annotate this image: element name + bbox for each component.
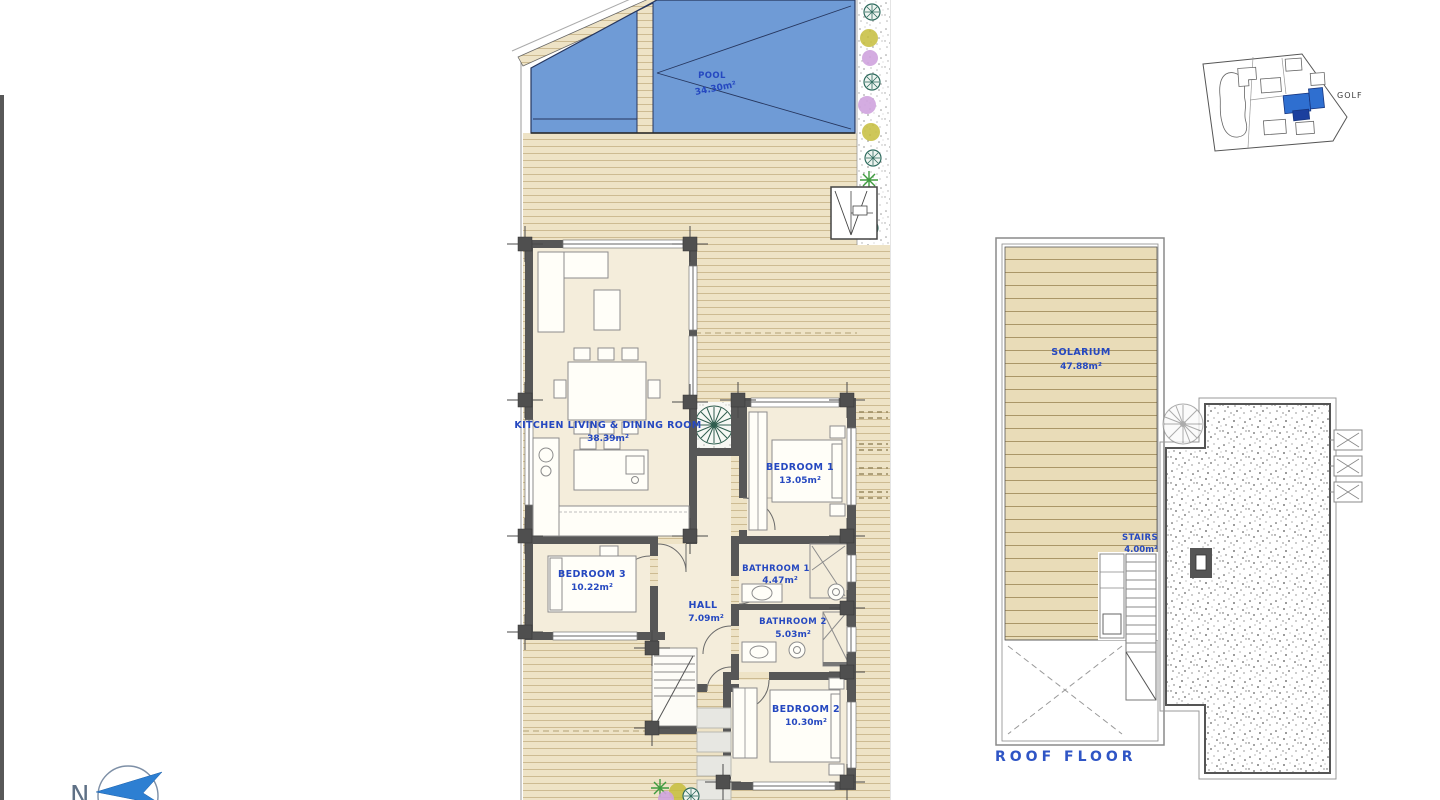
roof-floor-title: ROOF FLOOR bbox=[995, 749, 1137, 765]
roof-stairs bbox=[1126, 554, 1156, 700]
solarium-area: 47.88m² bbox=[1060, 362, 1102, 372]
living-label: KITCHEN LIVING & DINING ROOM bbox=[514, 420, 701, 431]
kitchen-counter bbox=[533, 438, 559, 536]
pillow bbox=[550, 558, 562, 610]
bedroom3-area: 10.22m² bbox=[571, 583, 613, 593]
hall-label: HALL bbox=[688, 600, 717, 611]
site-locator-map: GOLF bbox=[1203, 54, 1363, 151]
bush-icon bbox=[862, 123, 880, 141]
north-compass: N bbox=[70, 766, 162, 800]
window bbox=[563, 240, 683, 248]
roof-counter bbox=[1100, 554, 1124, 638]
roof-floor-plan: SOLARIUM 47.88m² STAIRS 4.00m² ROOF FLOO… bbox=[995, 238, 1362, 779]
pool: POOL 34.30m² bbox=[531, 0, 855, 133]
flower-icon bbox=[858, 96, 876, 114]
nightstand bbox=[830, 426, 845, 438]
ground-floor-plan: POOL 34.30m² bbox=[507, 0, 890, 800]
chair bbox=[554, 380, 566, 398]
sofa bbox=[564, 252, 608, 278]
louver-unit bbox=[1334, 430, 1362, 450]
page-edge-strip bbox=[0, 95, 4, 800]
golf-label: GOLF bbox=[1337, 91, 1363, 100]
shrub-icon bbox=[865, 150, 881, 166]
chair bbox=[598, 348, 614, 360]
window bbox=[751, 398, 839, 407]
nightstand bbox=[830, 504, 845, 516]
louver-unit bbox=[1334, 456, 1362, 476]
bathroom1-area: 4.47m² bbox=[762, 576, 798, 586]
louver-unit bbox=[1334, 482, 1362, 502]
bedroom2-area: 10.30m² bbox=[785, 718, 827, 728]
toilet bbox=[789, 642, 805, 658]
pool-label: POOL bbox=[698, 71, 726, 81]
entry-stairs bbox=[652, 648, 697, 726]
solarium-label: SOLARIUM bbox=[1051, 347, 1111, 358]
bush-icon bbox=[860, 29, 878, 47]
chair bbox=[574, 348, 590, 360]
shrub-icon bbox=[683, 788, 699, 800]
bedroom2-label: BEDROOM 2 bbox=[772, 704, 840, 715]
floorplan-canvas: POOL 34.30m² bbox=[0, 0, 1440, 800]
bathroom1-label: BATHROOM 1 bbox=[742, 564, 810, 574]
sofa bbox=[538, 252, 564, 332]
north-letter: N bbox=[70, 781, 89, 800]
bedroom3-label: BEDROOM 3 bbox=[558, 569, 626, 580]
chair bbox=[648, 380, 660, 398]
bathroom2-label: BATHROOM 2 bbox=[759, 617, 827, 627]
living-area: 38.39m² bbox=[587, 434, 629, 444]
wood-deck-east bbox=[857, 245, 890, 800]
window bbox=[847, 702, 856, 768]
armchair bbox=[594, 290, 620, 330]
pergola-louvers bbox=[1330, 430, 1362, 502]
stairs-label: STAIRS bbox=[1122, 533, 1158, 543]
shrub-icon bbox=[864, 74, 880, 90]
chair bbox=[622, 348, 638, 360]
bedroom1-label: BEDROOM 1 bbox=[766, 462, 834, 473]
toilet bbox=[828, 584, 844, 600]
shrub-icon bbox=[864, 4, 880, 20]
pool-deck-bridge bbox=[637, 3, 653, 133]
room-hall bbox=[658, 544, 731, 648]
nightstand bbox=[829, 764, 844, 775]
washbasin bbox=[742, 642, 776, 662]
window bbox=[553, 632, 637, 640]
roof-sink bbox=[1103, 614, 1121, 634]
window bbox=[525, 420, 533, 505]
kitchen-counter bbox=[559, 506, 689, 536]
window bbox=[847, 555, 856, 582]
window bbox=[753, 782, 835, 790]
dining-table bbox=[568, 362, 646, 420]
window bbox=[689, 266, 697, 330]
bathroom2-area: 5.03m² bbox=[775, 630, 811, 640]
window bbox=[847, 627, 856, 652]
washbasin bbox=[742, 584, 782, 602]
stairs-area: 4.00m² bbox=[1124, 545, 1158, 555]
gravel-roof bbox=[1166, 404, 1330, 773]
roof-tree-icon bbox=[1163, 404, 1203, 444]
outdoor-shower-structure bbox=[831, 187, 877, 239]
bedroom1-area: 13.05m² bbox=[779, 476, 821, 486]
hall-area: 7.09m² bbox=[688, 614, 724, 624]
flower-icon bbox=[862, 50, 878, 66]
nightstand bbox=[829, 678, 844, 689]
nightstand bbox=[600, 546, 618, 556]
window bbox=[847, 428, 856, 505]
chimney bbox=[1190, 548, 1212, 578]
hall-upper bbox=[697, 456, 731, 544]
